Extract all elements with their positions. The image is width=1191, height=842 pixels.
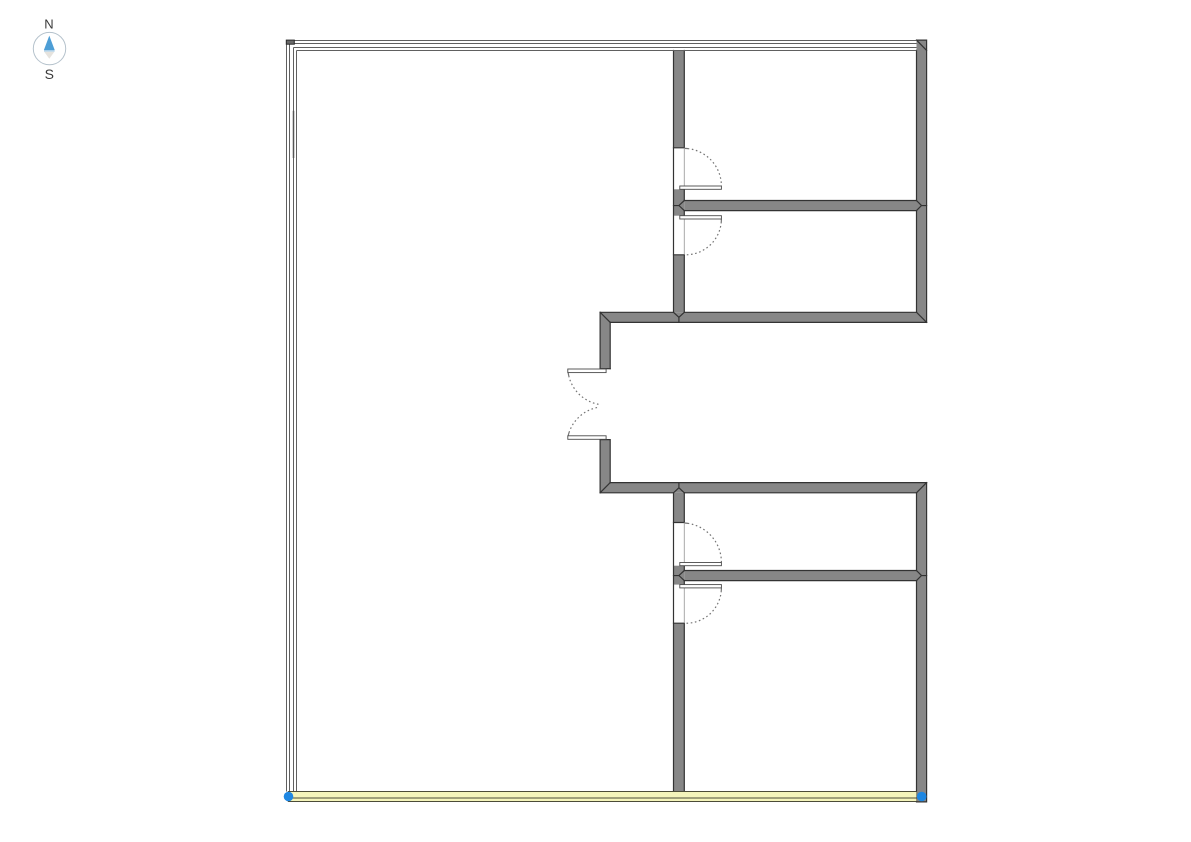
svg-text:N: N xyxy=(44,16,53,31)
svg-text:S: S xyxy=(45,66,54,82)
